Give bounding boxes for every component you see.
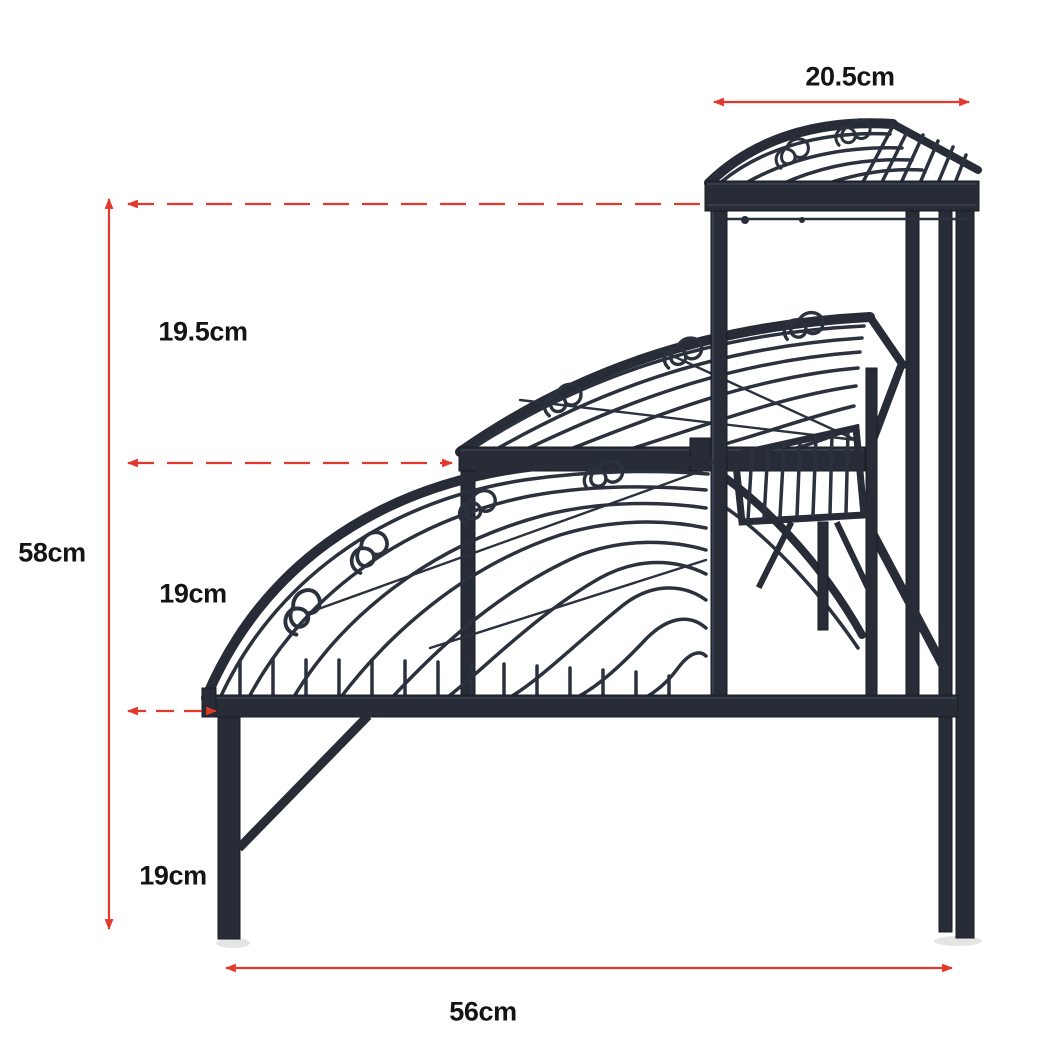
dimension-label-bottom-tier-height: 19cm xyxy=(139,861,206,892)
dimension-label-middle-tier-height: 19cm xyxy=(159,579,226,610)
dimension-label-base-width: 56cm xyxy=(449,997,516,1028)
dimension-label-top-tier-height: 19.5cm xyxy=(158,317,247,348)
frame-posts xyxy=(711,205,727,705)
dimension-label-top-shelf-width: 20.5cm xyxy=(805,62,894,93)
bottom-shelf xyxy=(202,459,958,717)
product-diagram: 20.5cm 19.5cm 58cm 19cm 19cm 56cm xyxy=(0,0,1048,1048)
front-leg xyxy=(216,717,365,948)
dimension-label-overall-height: 58cm xyxy=(18,538,85,569)
top-shelf xyxy=(705,117,979,224)
